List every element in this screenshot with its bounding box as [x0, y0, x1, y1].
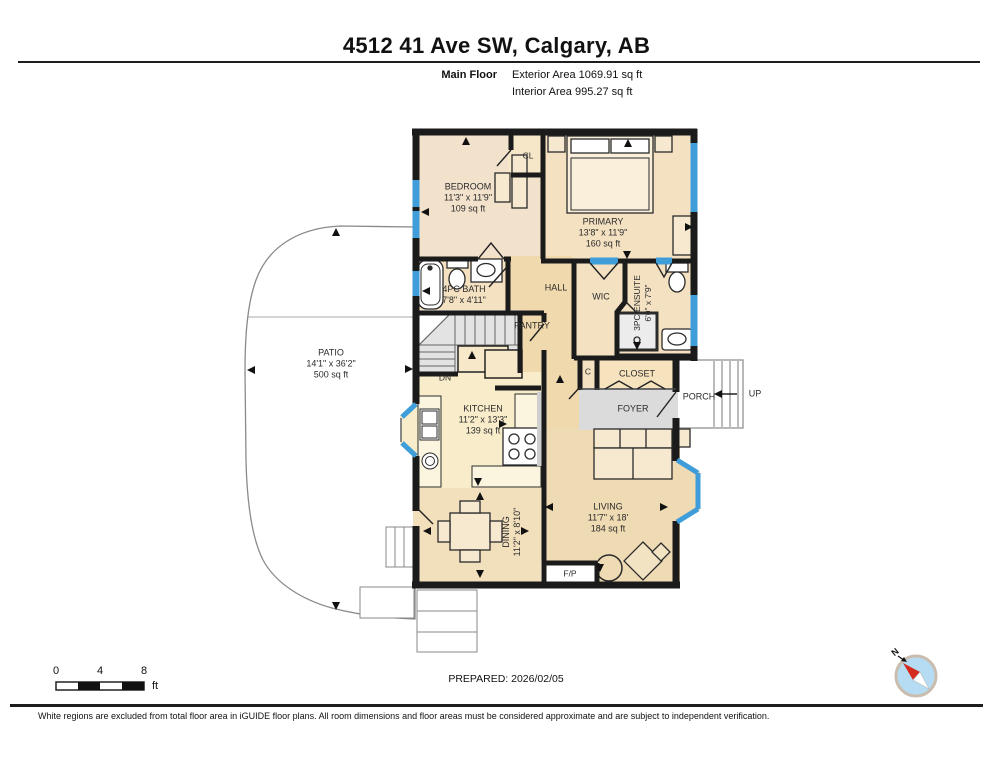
floorplan-page: 4512 41 Ave SW, Calgary, AB Main Floor E… — [0, 0, 993, 768]
label-stairs-up: UP — [749, 389, 762, 400]
room-name: 4PC BATH — [442, 284, 486, 295]
room-name: LIVING — [588, 502, 629, 513]
label-wic: WIC — [592, 292, 610, 303]
label-foyer: FOYER — [617, 404, 648, 415]
compass-graphic — [896, 656, 936, 696]
scale-tick-4: 4 — [97, 665, 103, 677]
room-dims: 11'7" x 18' — [588, 513, 629, 524]
room-name: PORCH — [683, 392, 716, 403]
label-patio: PATIO 14'1" x 36'2" 500 sq ft — [306, 348, 355, 381]
label-ensuite: 3PC ENSUITE 6'0" x 7'9" — [632, 275, 654, 331]
room-dims: 11'2" x 13'3" — [459, 415, 508, 426]
label-bath: 4PC BATH 7'8" x 4'11" — [442, 284, 486, 306]
room-name: CL — [523, 151, 534, 162]
label-stairs-dn: DN — [439, 373, 451, 384]
room-name: F/P — [563, 569, 576, 580]
room-area: 500 sq ft — [306, 370, 355, 381]
room-name: HALL — [545, 283, 568, 294]
scale-unit-label: ft — [152, 680, 158, 692]
label-fireplace: F/P — [563, 569, 576, 580]
room-dims: 13'8" x 11'9" — [579, 228, 628, 239]
room-name: C — [585, 367, 591, 378]
label-primary: PRIMARY 13'8" x 11'9" 160 sq ft — [579, 217, 628, 250]
scale-bar-graphic — [56, 682, 144, 690]
floorplan-drawing — [0, 0, 993, 768]
label-living: LIVING 11'7" x 18' 184 sq ft — [588, 502, 629, 535]
room-name: DINING — [501, 508, 512, 557]
label-kitchen: KITCHEN 11'2" x 13'3" 139 sq ft — [459, 404, 508, 437]
stairs-direction: DN — [439, 373, 451, 384]
room-dims: 11'3" x 11'9" — [444, 193, 492, 204]
room-area: 109 sq ft — [444, 204, 492, 215]
room-name: KITCHEN — [459, 404, 508, 415]
room-name: PATIO — [306, 348, 355, 359]
footer-divider — [10, 704, 983, 707]
label-dining: DINING 11'2" x 8'10" — [501, 508, 523, 557]
room-name: CLOSET — [619, 369, 655, 380]
disclaimer-text: White regions are excluded from total fl… — [38, 711, 769, 721]
scale-tick-8: 8 — [141, 665, 147, 677]
room-area: 160 sq ft — [579, 239, 628, 250]
room-name: BEDROOM — [444, 182, 492, 193]
room-area: 184 sq ft — [588, 524, 629, 535]
label-closet-cl: CL — [523, 151, 534, 162]
label-closet: CLOSET — [619, 369, 655, 380]
room-area: 139 sq ft — [459, 426, 508, 437]
label-hall: HALL — [545, 283, 568, 294]
room-dims: 11'2" x 8'10" — [512, 508, 523, 557]
label-closet-c: C — [585, 367, 591, 378]
room-name: PANTRY — [514, 321, 550, 332]
room-name: WIC — [592, 292, 610, 303]
room-name: FOYER — [617, 404, 648, 415]
label-bedroom: BEDROOM 11'3" x 11'9" 109 sq ft — [444, 182, 492, 215]
label-pantry: PANTRY — [514, 321, 550, 332]
scale-tick-0: 0 — [53, 665, 59, 677]
room-name: 3PC ENSUITE — [632, 275, 643, 331]
label-porch: PORCH — [683, 392, 716, 403]
stairs-direction: UP — [749, 389, 762, 400]
room-dims: 6'0" x 7'9" — [643, 275, 654, 331]
room-name: PRIMARY — [579, 217, 628, 228]
room-dims: 7'8" x 4'11" — [442, 295, 486, 306]
prepared-date-text: PREPARED: 2026/02/05 — [448, 673, 563, 685]
room-dims: 14'1" x 36'2" — [306, 359, 355, 370]
